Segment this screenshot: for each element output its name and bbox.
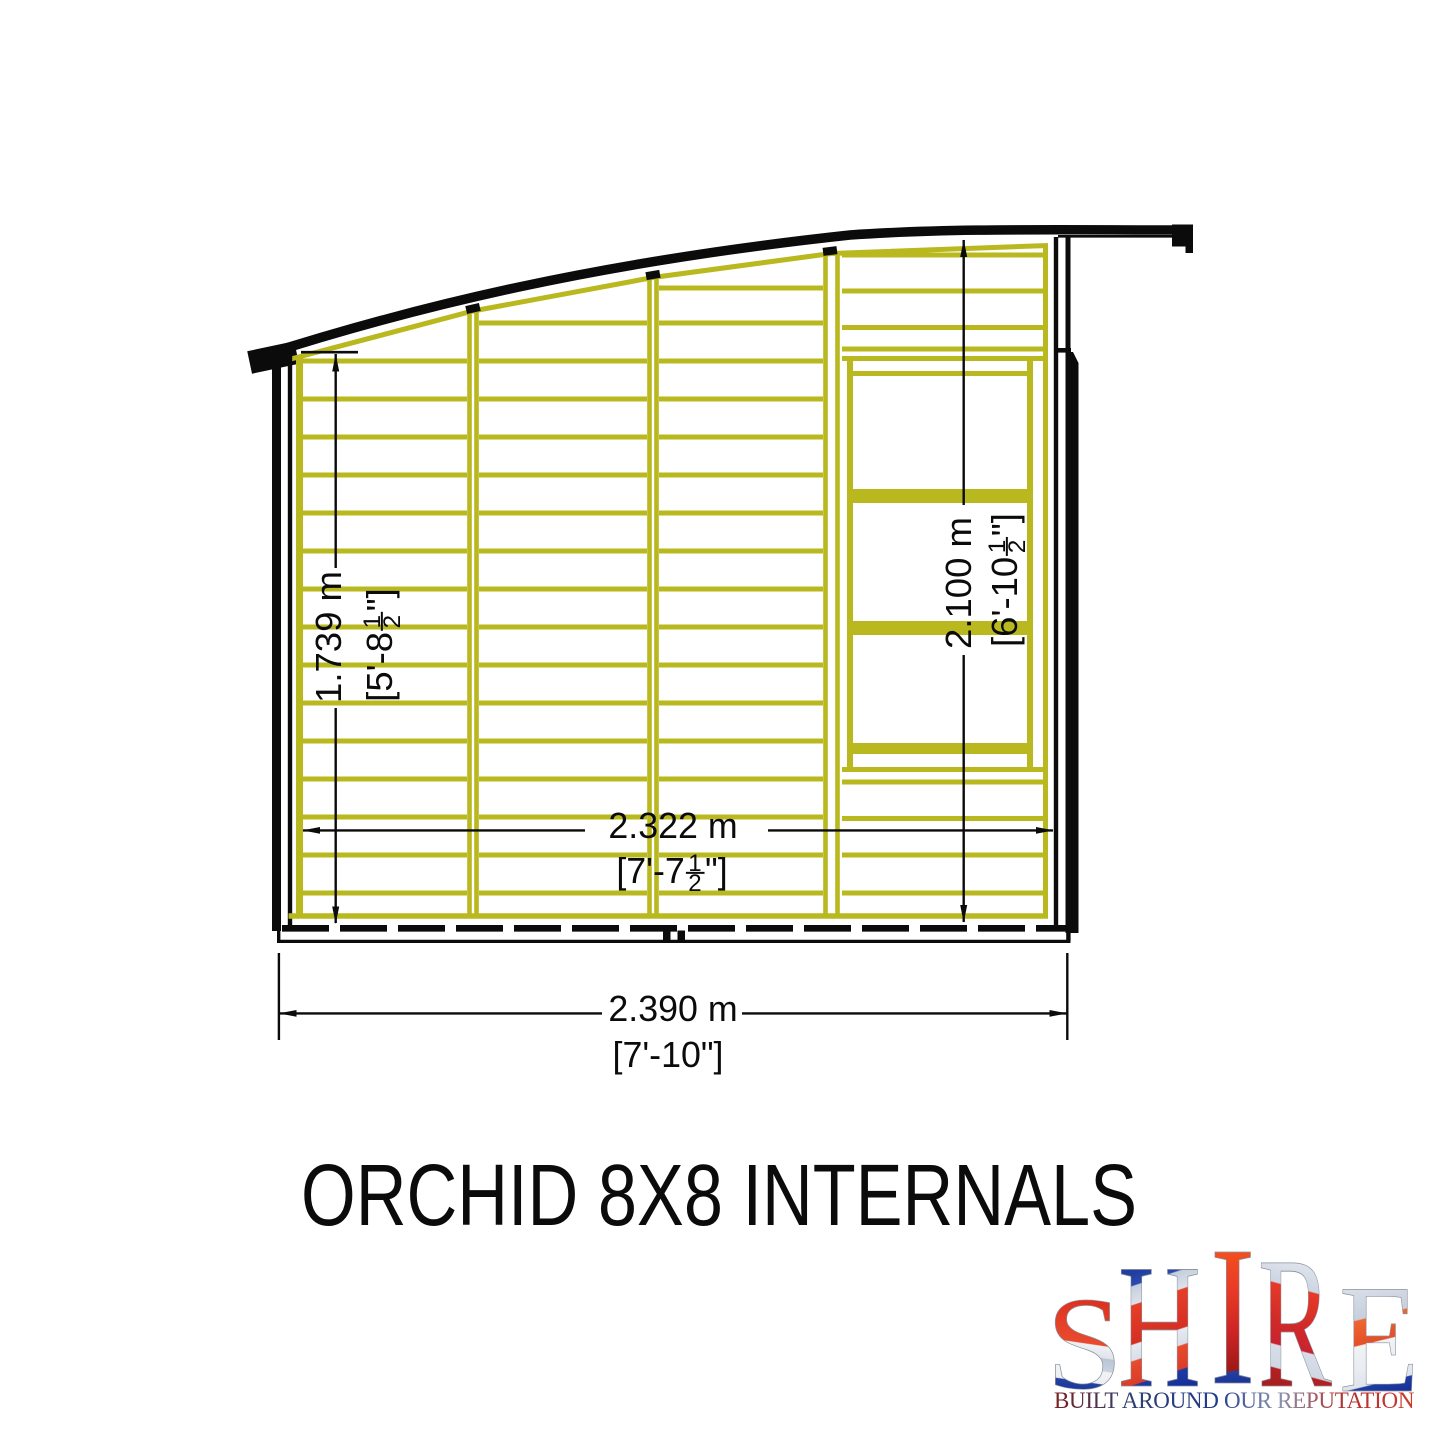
svg-text:BUILT AROUND OUR REPUTATION: BUILT AROUND OUR REPUTATION xyxy=(1054,1388,1416,1413)
